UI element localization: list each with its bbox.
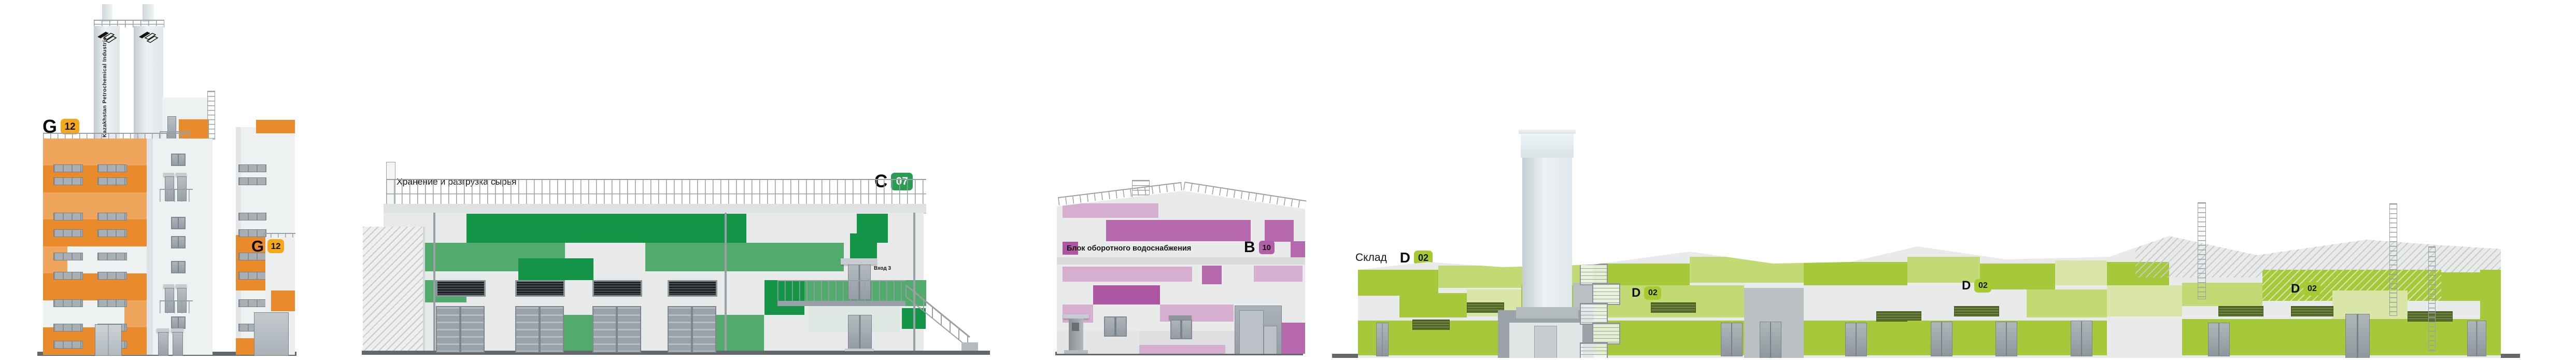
roof-ladder bbox=[207, 91, 215, 140]
window-pair bbox=[171, 236, 186, 248]
facade-patch bbox=[1265, 220, 1294, 242]
window-strip bbox=[97, 164, 127, 172]
window-strip bbox=[238, 229, 266, 237]
window-strip bbox=[53, 229, 83, 237]
facade-patch bbox=[1139, 345, 1225, 354]
equipment-cap bbox=[1063, 314, 1089, 319]
balcony-railing bbox=[160, 189, 193, 202]
code-badge: 02 bbox=[1974, 279, 1991, 293]
facade-patch bbox=[1202, 266, 1222, 284]
walkway bbox=[777, 301, 905, 306]
chimney-right bbox=[134, 26, 163, 139]
chimney-neck bbox=[102, 4, 112, 22]
building-code-d02: D 02 bbox=[1962, 279, 1991, 293]
walkway-railing bbox=[777, 280, 905, 302]
facade-patch bbox=[1281, 323, 1305, 354]
facade-patch bbox=[2027, 289, 2107, 317]
building-code-d02: D 02 bbox=[1632, 286, 1661, 300]
window-strip bbox=[97, 272, 127, 280]
entrance-door bbox=[1760, 322, 1781, 359]
portal-leg bbox=[1498, 310, 1509, 358]
stair-flight bbox=[1580, 303, 1608, 325]
wall-vent bbox=[1651, 302, 1696, 313]
facade-patch bbox=[561, 315, 592, 351]
window-strip bbox=[53, 299, 83, 307]
building-g: Kazakhstan Petrochemical Industries G 12 bbox=[41, 0, 308, 360]
facade-patch bbox=[1291, 241, 1305, 258]
entrance-door bbox=[1995, 322, 2017, 356]
code-badge: 02 bbox=[2303, 282, 2320, 296]
stair-flight bbox=[1580, 342, 1608, 359]
foreground-building bbox=[363, 227, 425, 351]
window-strip bbox=[238, 213, 266, 220]
window-strip bbox=[53, 213, 83, 220]
entrance-door bbox=[2071, 321, 2092, 356]
facade-patch bbox=[1063, 203, 1158, 218]
code-badge: 02 bbox=[1644, 286, 1661, 300]
facade-patch bbox=[1254, 266, 1303, 282]
entrance-door bbox=[1376, 323, 1389, 356]
entrance-door bbox=[2345, 314, 2370, 359]
window-strip bbox=[53, 272, 83, 280]
chimney-neck bbox=[143, 4, 154, 22]
entrance-door bbox=[1931, 322, 1952, 356]
stack-body bbox=[1522, 158, 1572, 319]
window-strip bbox=[238, 177, 266, 185]
building-code-d02: D 02 bbox=[2291, 282, 2320, 296]
roller-door bbox=[436, 306, 485, 353]
entrance-door bbox=[1845, 323, 1867, 356]
roller-door bbox=[592, 306, 641, 353]
window-strip bbox=[238, 272, 266, 280]
entrance-door bbox=[158, 332, 168, 356]
building-code-g12: G 12 bbox=[251, 238, 284, 254]
code-badge: 10 bbox=[1259, 241, 1275, 254]
window-pair bbox=[1170, 320, 1192, 339]
entrance-door bbox=[1721, 323, 1743, 356]
roof-ladder bbox=[2428, 246, 2436, 351]
building-code-b10: B 10 bbox=[1244, 240, 1275, 255]
door-panel bbox=[1264, 326, 1277, 354]
roof-ladder bbox=[2198, 202, 2206, 299]
window-pair bbox=[171, 261, 186, 273]
chimney-left: Kazakhstan Petrochemical Industries bbox=[94, 26, 120, 139]
facade-patch bbox=[466, 214, 746, 243]
elevation-drawing-canvas: Kazakhstan Petrochemical Industries G 12 bbox=[0, 0, 2576, 360]
building-b: Блок оборотного водоснабжения B 10 bbox=[1055, 171, 1311, 360]
window-strip bbox=[53, 177, 83, 185]
door-panel bbox=[1239, 310, 1264, 354]
window-pair bbox=[171, 316, 186, 329]
downpipe bbox=[725, 213, 727, 351]
louver-vent bbox=[668, 280, 717, 297]
parapet-railing bbox=[386, 179, 926, 205]
stair-flight bbox=[1592, 323, 1620, 344]
facade-patch bbox=[1358, 270, 1438, 296]
entrance-door bbox=[848, 315, 872, 350]
window-strip bbox=[97, 213, 127, 220]
window-strip bbox=[97, 177, 127, 185]
entrance-door bbox=[95, 324, 122, 356]
wall-vent bbox=[2291, 306, 2333, 316]
roof-ladder bbox=[2389, 203, 2397, 316]
entrance-label: Вход 3 bbox=[874, 266, 891, 271]
code-letter: G bbox=[251, 238, 264, 254]
facade-patch bbox=[714, 315, 764, 351]
facade-patch bbox=[1106, 220, 1251, 241]
facade-patch bbox=[1438, 266, 1521, 288]
door-canopy bbox=[841, 258, 877, 265]
stack-rim bbox=[1519, 130, 1576, 134]
facade bbox=[1057, 187, 1305, 354]
window-strip bbox=[53, 253, 83, 260]
roller-door bbox=[668, 306, 716, 353]
code-badge: 12 bbox=[267, 239, 284, 253]
entrance-door bbox=[2467, 321, 2486, 356]
door-canopy bbox=[163, 284, 174, 288]
stack-collar bbox=[1516, 307, 1578, 319]
facade-patch bbox=[1594, 264, 1690, 285]
louver-vent bbox=[592, 280, 642, 297]
window-strip bbox=[53, 341, 83, 349]
facade-patch bbox=[2182, 283, 2262, 306]
code-letter: B bbox=[1244, 240, 1255, 255]
window-strip bbox=[97, 299, 127, 307]
code-letter: D bbox=[1962, 280, 1971, 292]
facade-patch bbox=[1690, 257, 1804, 283]
building-title: Склад bbox=[1355, 252, 1387, 264]
window-strip bbox=[97, 253, 127, 260]
louver-vent bbox=[436, 280, 486, 297]
door-canopy bbox=[163, 173, 174, 176]
company-logo-icon bbox=[137, 30, 159, 45]
facade-patch bbox=[850, 233, 877, 258]
door-canopy bbox=[171, 328, 183, 332]
wall-vent bbox=[1876, 311, 1921, 322]
louver-vent bbox=[515, 280, 565, 297]
code-letter: D bbox=[1400, 251, 1410, 265]
facade-patch bbox=[518, 258, 593, 280]
building-c: Хранение и разгрузка сырья C 07 bbox=[360, 156, 995, 360]
door-canopy bbox=[176, 173, 187, 176]
wall-vent bbox=[1412, 320, 1450, 330]
window-strip bbox=[53, 324, 83, 331]
facade-patch bbox=[256, 120, 295, 133]
entrance-door bbox=[2208, 323, 2230, 356]
window-strip bbox=[238, 164, 266, 172]
garage-door bbox=[254, 312, 289, 356]
downpipe bbox=[433, 213, 435, 351]
code-letter: D bbox=[1632, 287, 1640, 299]
door-sill bbox=[845, 349, 874, 351]
facade-patch bbox=[1093, 285, 1160, 304]
code-badge: 12 bbox=[61, 119, 79, 134]
door-canopy bbox=[157, 328, 169, 332]
equipment-window bbox=[1072, 323, 1079, 331]
window-canopy bbox=[1169, 315, 1192, 320]
facade-patch bbox=[271, 290, 295, 311]
facade-patch bbox=[645, 243, 844, 271]
roller-door bbox=[515, 306, 564, 353]
window-strip bbox=[238, 299, 266, 307]
entrance-door bbox=[173, 332, 183, 356]
stair-base bbox=[961, 342, 978, 351]
portal-door bbox=[1534, 326, 1557, 359]
building-d: Склад D 02 bbox=[1329, 124, 2532, 360]
door-canopy bbox=[176, 284, 187, 288]
window-strip bbox=[97, 229, 127, 237]
window-pair bbox=[171, 154, 186, 166]
code-letter: D bbox=[2291, 283, 2300, 295]
wall-vent bbox=[2218, 306, 2263, 316]
facade-patch bbox=[2107, 285, 2182, 316]
facade-patch bbox=[2182, 319, 2501, 355]
equipment-base bbox=[1064, 350, 1088, 354]
balcony-railing bbox=[160, 300, 193, 313]
window-strip bbox=[53, 164, 83, 172]
facade-patch bbox=[1063, 267, 1192, 282]
window-pair bbox=[1104, 316, 1127, 337]
window-pair bbox=[171, 217, 186, 229]
stair-flight bbox=[1580, 264, 1608, 285]
stair-flight bbox=[1592, 283, 1620, 305]
facade-patch bbox=[2055, 260, 2107, 285]
wall-vent bbox=[1954, 306, 1999, 316]
facade-patch bbox=[1399, 293, 1467, 317]
building-title: Блок оборотного водоснабжения bbox=[1067, 244, 1191, 253]
facade-patch bbox=[1804, 262, 1907, 285]
stack-cap bbox=[1521, 134, 1574, 158]
chimney-company-text: Kazakhstan Petrochemical Industries bbox=[102, 49, 108, 137]
cornice-band bbox=[1057, 257, 1305, 265]
